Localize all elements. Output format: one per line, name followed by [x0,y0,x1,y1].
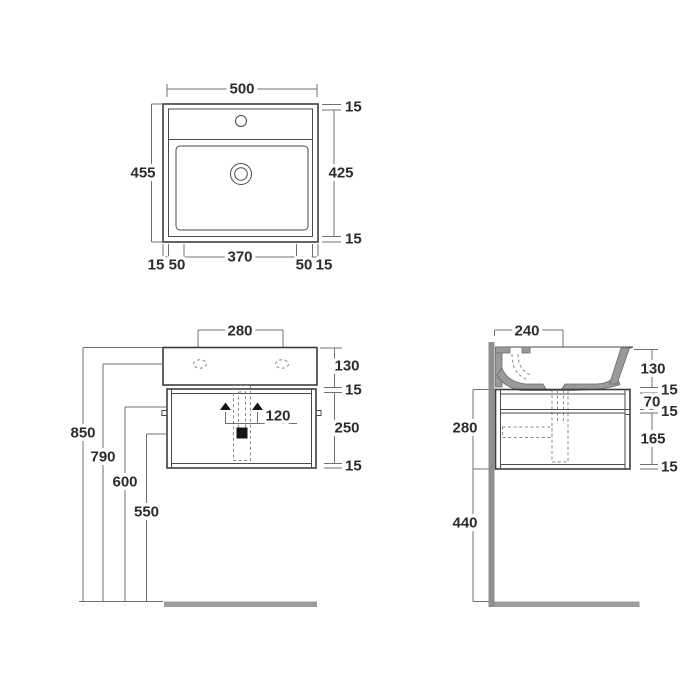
dimension-side-right-stack: 130 15 70 15 165 15 [634,350,678,476]
basin-outer-outline [163,104,318,242]
dimension-overall-width: 500 [167,81,317,98]
bowl-floor-section [497,368,620,391]
basin-deck-front [522,347,530,353]
front-view: 280 120 130 15 250 15 850 [70,323,361,608]
fixing-hole-left-icon [194,360,207,368]
floor-icon [495,602,640,608]
dimension-bottom-row: 15 50 370 50 15 [148,244,333,274]
dim-label-cabinet-height: 250 [334,420,359,437]
dim-label-600: 600 [112,474,137,491]
dim-label-455: 455 [130,165,155,182]
waste-pipe-dashed [239,392,246,428]
dim-label-offset-right: 50 [296,257,313,274]
dimension-bracket-spacing: 120 [226,408,298,425]
dim-label-rim-top: 15 [345,99,362,116]
dim-label-120: 120 [265,408,290,425]
dim-label-850: 850 [70,425,95,442]
side-view: 240 130 15 70 15 165 [452,323,677,608]
dimension-heights: 850 790 600 550 [70,348,167,602]
dim-label-edge-right: 15 [316,257,333,274]
cabinet-side-panels [501,390,626,470]
bracket-right-icon [252,403,263,411]
dimension-side-left-stack: 280 440 [452,390,488,602]
dim-label-rim-bottom: 15 [345,231,362,248]
basin-rim-inner-line [169,109,313,237]
dim-label-drawer-bottom: 165 [640,431,665,448]
dimension-hole-spacing: 280 [198,323,283,348]
top-view: 500 455 15 425 15 15 50 370 50 15 [130,81,361,274]
overflow-channel-dashed [512,354,532,380]
basin-section [496,347,634,391]
dim-label-edge-left: 15 [148,257,165,274]
drain-outlet-icon [237,428,248,439]
dim-label-cabinet-bottom: 15 [345,458,362,475]
drain-icon [231,164,252,185]
dimension-depth: 240 [495,323,564,348]
cabinet-side-outline [496,390,631,470]
dim-label-425: 425 [328,165,353,182]
dim-label-drawer-top: 70 [644,394,661,411]
dim-label-370: 370 [227,249,252,266]
dim-label-550: 550 [134,504,159,521]
faucet-hole-icon [236,116,247,127]
fixing-hole-right-icon [276,360,289,368]
wall-icon [489,342,495,607]
drain-inner-icon [235,168,248,181]
dim-label-gap-top: 15 [345,382,362,399]
dimension-front-right-stack: 130 15 250 15 [320,348,362,475]
waste-channel-side-dashed [552,390,568,462]
dim-label-790: 790 [90,449,115,466]
dim-label-240: 240 [514,323,539,340]
waste-pipe-side-dashed [558,390,564,424]
drawing-canvas: 500 455 15 425 15 15 50 370 50 15 280 [0,0,700,700]
dim-label-side-basin-height: 130 [640,361,665,378]
dimension-right-stack: 15 425 15 [322,99,362,248]
dim-label-500: 500 [229,81,254,98]
basin-front-outline [163,348,317,386]
bracket-left-icon [220,403,231,411]
dim-label-side-gap-top: 15 [661,382,678,399]
dimension-overall-depth: 455 [130,104,163,242]
dim-label-side-cabinet-height: 280 [452,420,477,437]
basin-front-wall-section [610,348,630,384]
dim-label-280: 280 [227,323,252,340]
basin-deck-back [496,347,511,353]
dim-label-basin-height: 130 [334,358,359,375]
dim-label-offset-left: 50 [169,257,186,274]
bowl-outline [176,146,308,230]
dim-label-440: 440 [452,515,477,532]
washbasin-technical-drawing: 500 455 15 425 15 15 50 370 50 15 280 [0,0,700,700]
siphon-trap-icon [503,427,553,438]
floor-bar-front [164,602,317,608]
dim-label-panel-bottom: 15 [661,459,678,476]
dim-label-divider: 15 [661,403,678,420]
